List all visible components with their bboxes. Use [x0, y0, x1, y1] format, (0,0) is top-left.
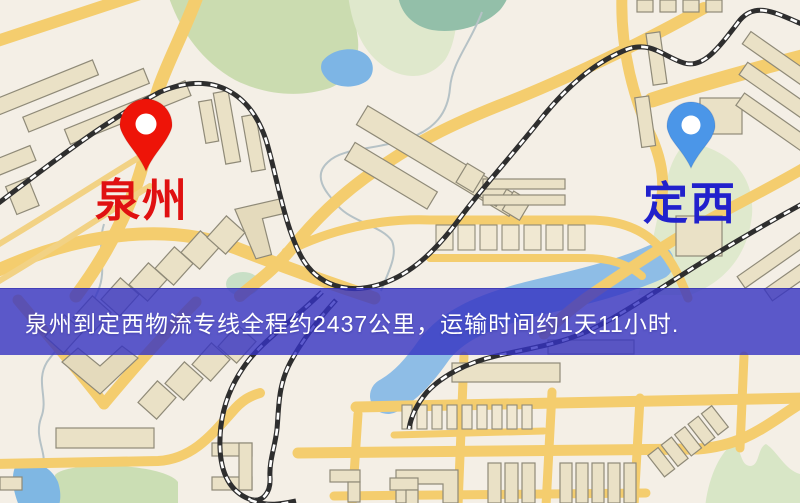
route-info-banner: 泉州到定西物流专线全程约2437公里，运输时间约1天11小时.	[0, 288, 800, 355]
logistics-route-map-image: 泉州 定西 泉州到定西物流专线全程约2437公里，运输时间约1天11小时.	[0, 0, 800, 503]
map-canvas	[0, 0, 800, 503]
origin-city-label: 泉州	[95, 178, 189, 223]
route-info-text: 泉州到定西物流专线全程约2437公里，运输时间约1天11小时.	[25, 305, 679, 339]
origin-pin-icon[interactable]	[120, 99, 172, 171]
buildings	[0, 0, 800, 503]
destination-city-label: 定西	[643, 181, 737, 226]
